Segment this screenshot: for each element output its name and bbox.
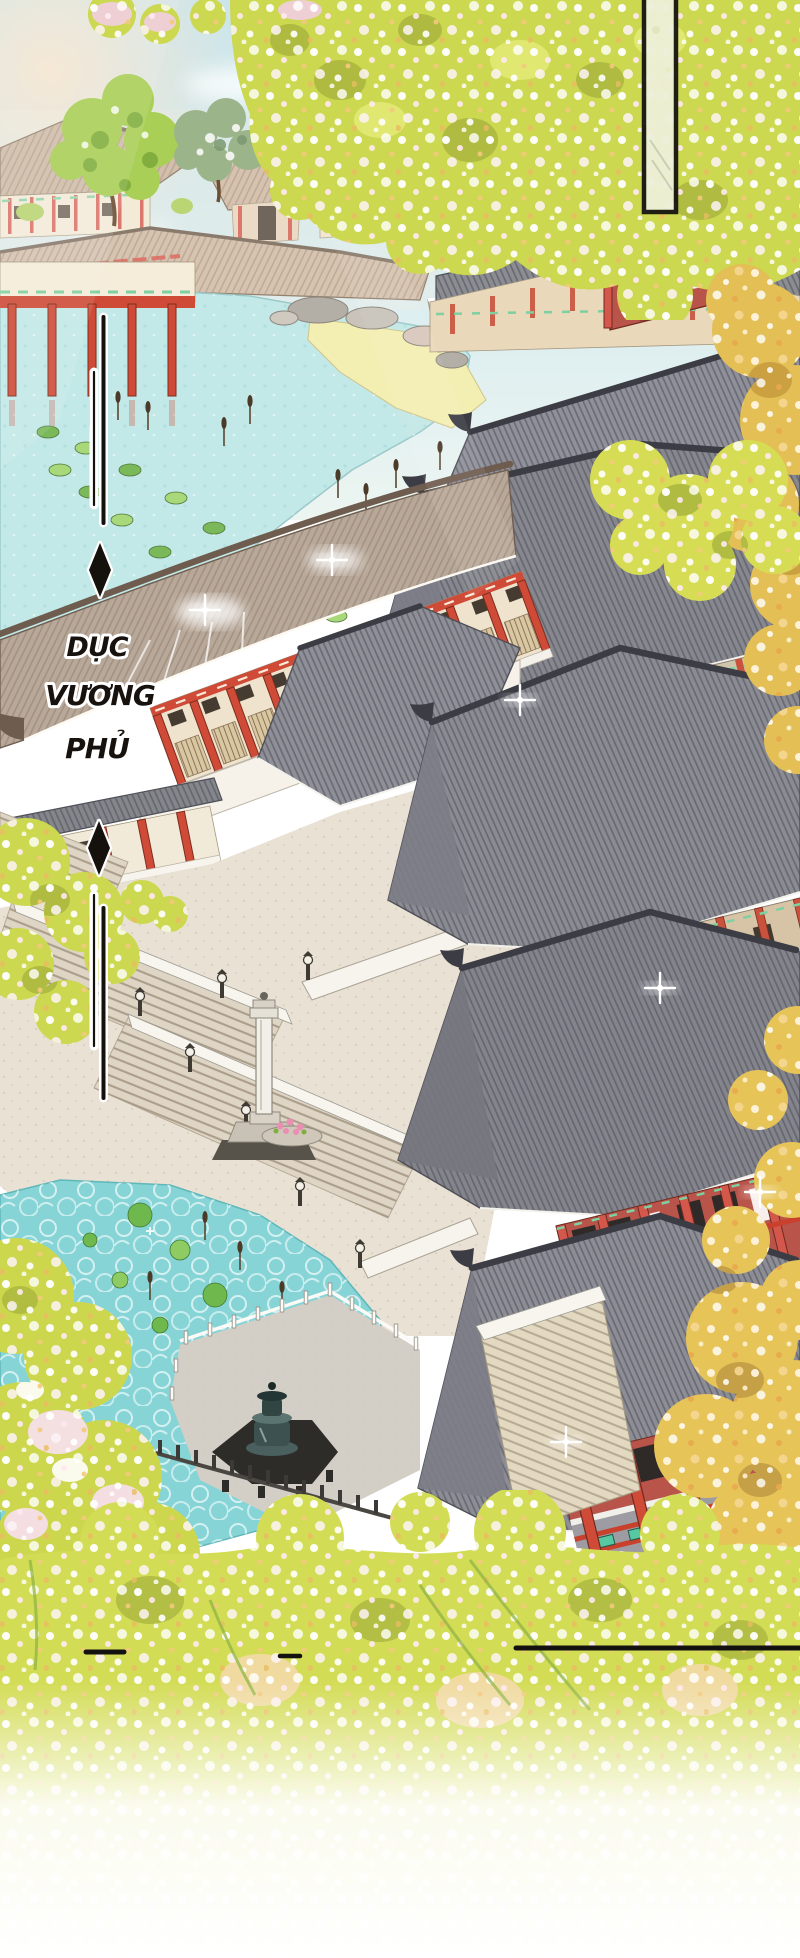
caption-line-2: VƯƠNG	[45, 679, 155, 712]
caption-line-1: DỤC	[66, 632, 128, 663]
caption-line-3: PHỦ	[65, 727, 130, 765]
bottom-fade	[0, 1680, 800, 1958]
comic-page: DỤC VƯƠNG PHỦ	[0, 0, 800, 1958]
roof-tier-d	[398, 912, 800, 1216]
palace-illustration: DỤC VƯƠNG PHỦ	[0, 0, 800, 1958]
empty-panel-box	[644, 0, 676, 212]
